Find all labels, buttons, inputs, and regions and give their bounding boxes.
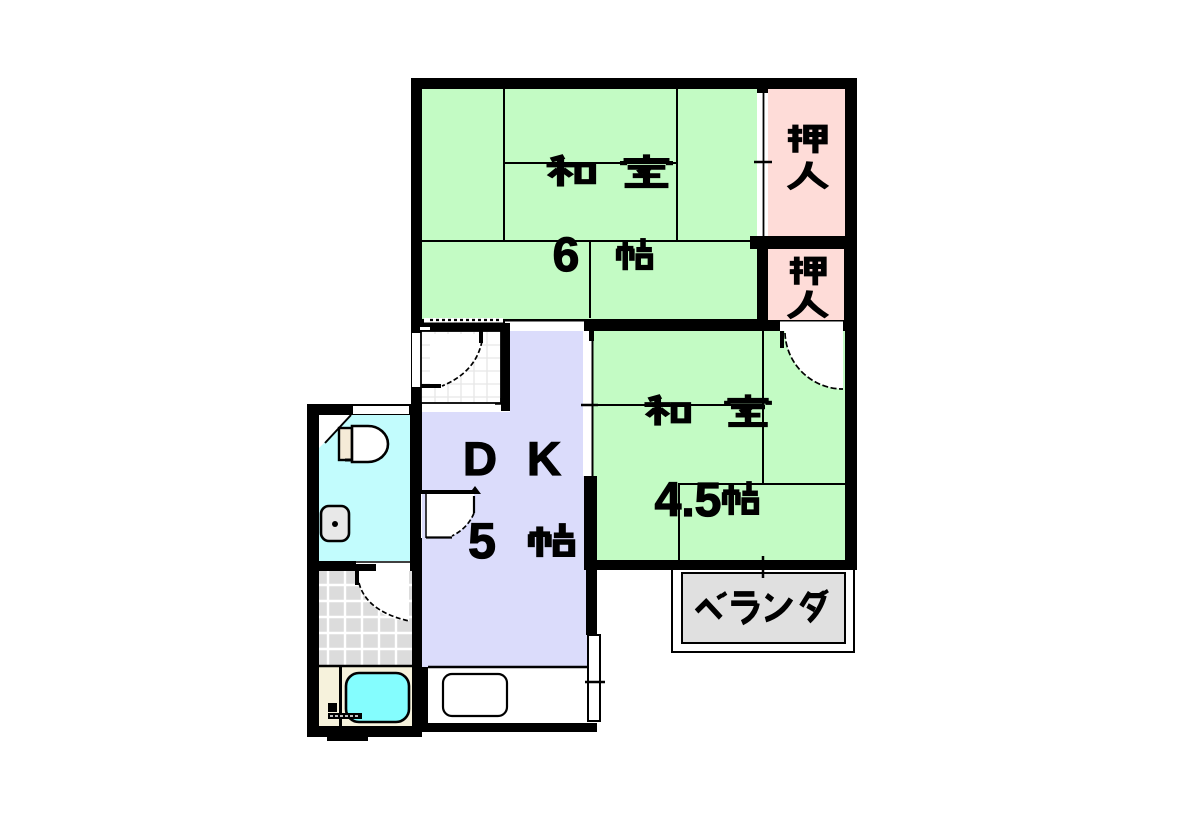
svg-text:6: 6: [553, 229, 580, 282]
svg-text:K: K: [527, 432, 561, 485]
svg-text:4.5: 4.5: [655, 474, 722, 527]
svg-text:D: D: [463, 432, 497, 485]
svg-text:5: 5: [468, 513, 496, 569]
